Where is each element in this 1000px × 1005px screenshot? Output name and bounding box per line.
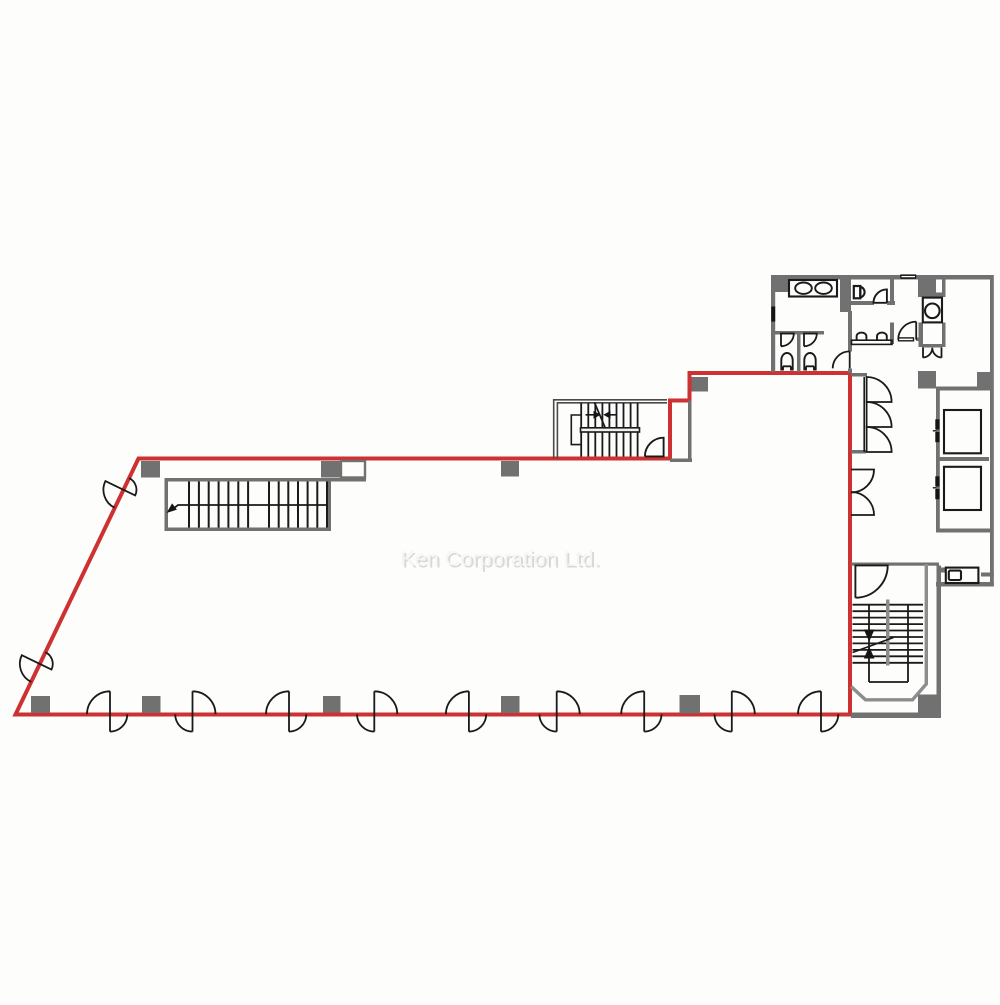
svg-text:Ken Corporation Ltd.: Ken Corporation Ltd. (401, 547, 600, 571)
